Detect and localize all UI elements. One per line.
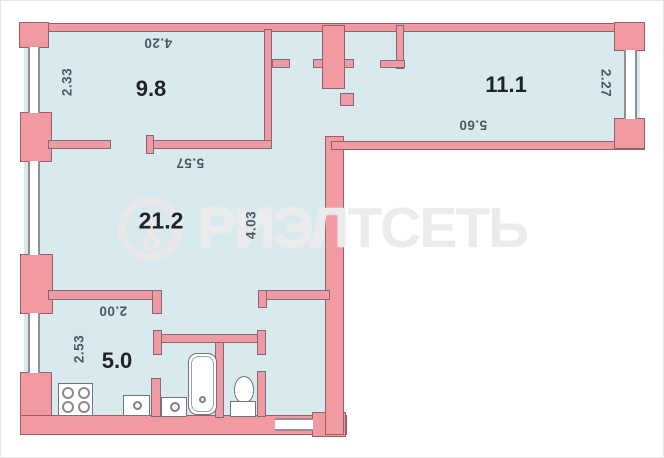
wall-bedroom-bottom-right [146,140,272,149]
dimension-kitchen-depth: 2.53 [72,335,87,363]
wall-cap-bathroom-right [257,330,266,355]
wall-pier-top-right [614,22,645,51]
wall-closet-stub [380,60,405,68]
window-living-icon [28,161,40,255]
wall-stub-hall [340,93,354,106]
wall-bathroom-top [153,334,266,343]
window-bottom-icon [275,418,313,431]
wall-bedroom-right [264,29,272,149]
wall-pier-top-left [19,22,49,48]
wall-bedroom-bottom-left [48,140,111,149]
wall-wc-right [257,371,266,417]
wall-hall-top [258,290,330,300]
floor-plan: РИЭЛТСЕТЬ 4.20 2.33 9.8 11.1 5.60 2.27 5… [0,0,664,458]
wall-pier-right-lower [614,118,645,149]
wall-pier-left-1 [20,112,52,162]
dimension-living-depth: 4.03 [244,211,259,239]
area-label-living: 21.2 [139,208,184,235]
wall-stub-entry-right [344,59,354,68]
watermark-logo-dot-icon [143,234,160,251]
wall-room2-bottom [331,141,645,150]
bathtub-icon [188,353,217,415]
dimension-bedroom-width: 4.20 [144,36,172,51]
wall-stub-entry-left [313,59,323,68]
dimension-room2-depth: 2.27 [599,69,614,97]
window-room2-icon [624,50,637,119]
area-label-bedroom: 9.8 [136,76,167,102]
stove-icon [58,383,93,416]
dimension-bedroom-depth: 2.33 [60,68,75,96]
wall-kitchen-bath [151,378,161,417]
area-label-room2: 11.1 [485,72,527,98]
dimension-living-width: 5.57 [176,156,204,171]
dimension-kitchen-width: 2.00 [99,304,127,319]
wall-stub-bedroom-door [272,59,290,68]
window-kitchen-icon [28,313,40,373]
toilet-icon [234,376,254,403]
toilet-tank-icon [230,401,256,417]
area-label-kitchen: 5.0 [102,348,133,374]
dimension-room2-width: 5.60 [459,118,487,133]
wall-kitchen-top [48,290,162,300]
wall-cap-bedroom-door [146,135,154,154]
window-bedroom-icon [28,47,40,113]
wall-cap-bathroom-left [153,330,162,355]
wall-pier-left-2 [20,254,53,314]
sink-icon [123,395,150,416]
wall-entry-partition [322,25,345,89]
wall-cap-kitchen [152,290,162,314]
wall-cap-hall [258,290,267,308]
wall-right-lower-wing [325,136,344,435]
washing-machine-icon [161,397,187,417]
